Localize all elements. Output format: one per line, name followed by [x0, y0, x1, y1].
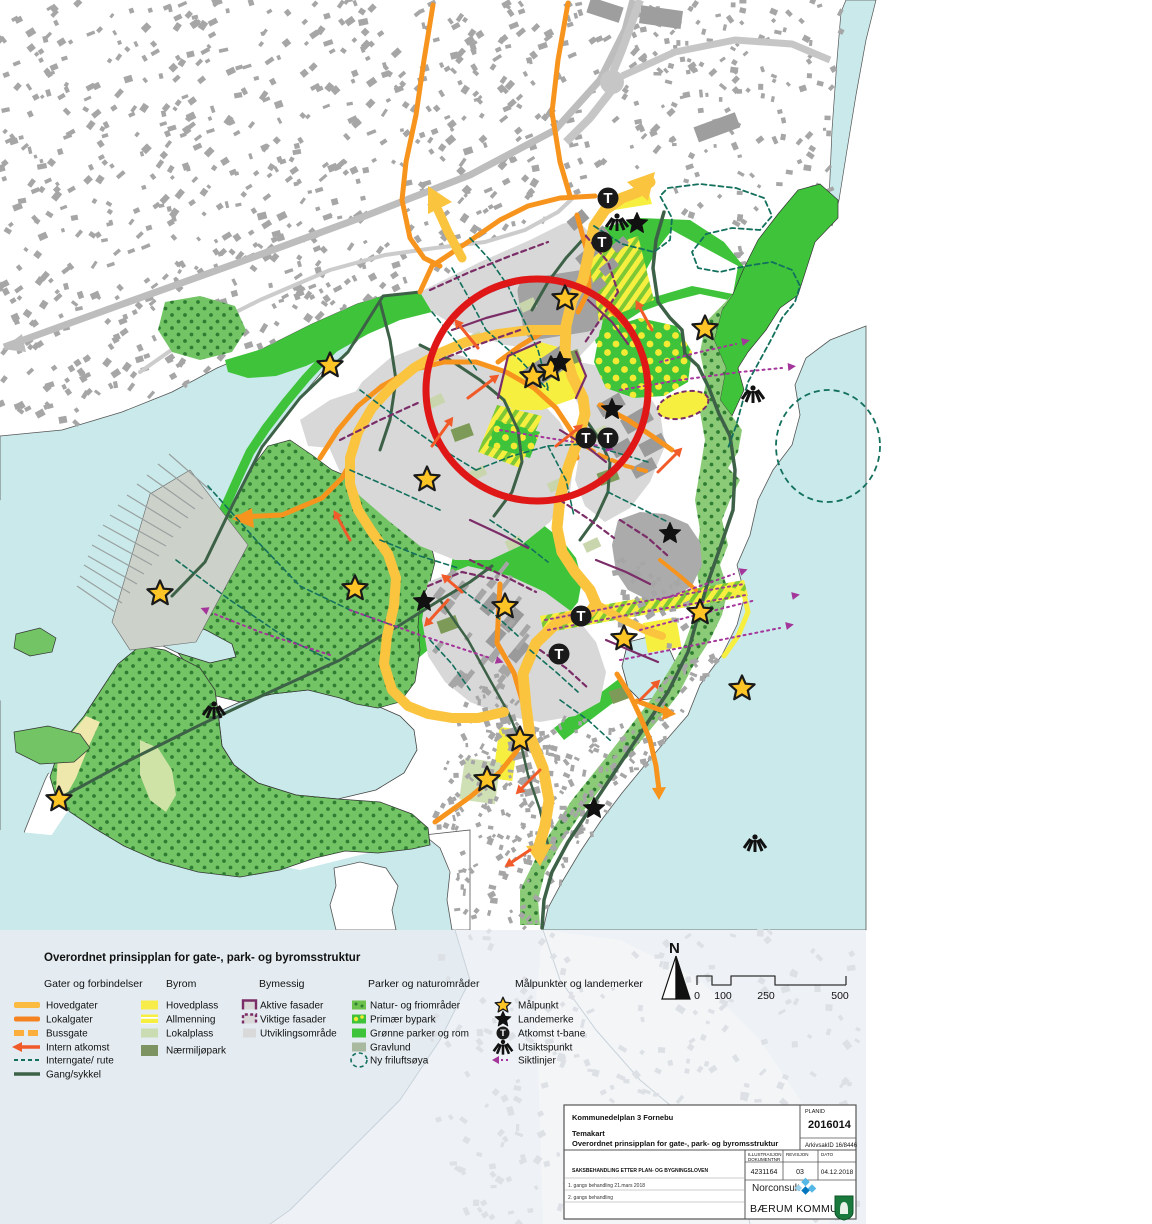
svg-text:Utviklingsområde: Utviklingsområde	[260, 1028, 337, 1040]
svg-text:Bymessig: Bymessig	[259, 978, 305, 990]
svg-text:03: 03	[796, 1169, 804, 1176]
svg-text:Hovedplass: Hovedplass	[166, 1001, 218, 1012]
svg-text:Parker og naturområder: Parker og naturområder	[368, 978, 480, 990]
svg-text:4231164: 4231164	[751, 1169, 778, 1176]
svg-text:Hovedgater: Hovedgater	[46, 1001, 98, 1012]
svg-text:Atkomst t-bane: Atkomst t-bane	[518, 1029, 586, 1040]
svg-text:PLANID: PLANID	[805, 1109, 825, 1115]
svg-text:Gater og forbindelser: Gater og forbindelser	[44, 978, 143, 990]
svg-text:Målpunkter og landemerker: Målpunkter og landemerker	[515, 978, 643, 990]
svg-text:Bussgate: Bussgate	[46, 1029, 88, 1040]
svg-text:Allmenning: Allmenning	[166, 1015, 215, 1026]
svg-text:100: 100	[714, 990, 732, 1002]
svg-text:Lokalgater: Lokalgater	[46, 1015, 93, 1026]
svg-text:Landemerke: Landemerke	[518, 1015, 574, 1026]
svg-text:Utsiktspunkt: Utsiktspunkt	[518, 1043, 573, 1054]
svg-text:250: 250	[757, 990, 775, 1002]
svg-text:Temakart: Temakart	[572, 1129, 605, 1138]
svg-text:Målpunkt: Målpunkt	[518, 1000, 559, 1012]
svg-text:Siktlinjer: Siktlinjer	[518, 1056, 556, 1067]
svg-text:04.12.2018: 04.12.2018	[821, 1169, 854, 1176]
svg-text:Kommunedelplan 3 Fornebu: Kommunedelplan 3 Fornebu	[572, 1113, 674, 1122]
svg-text:Byrom: Byrom	[166, 978, 197, 990]
svg-text:2016014: 2016014	[808, 1119, 852, 1131]
svg-text:Primær bypark: Primær bypark	[370, 1015, 437, 1026]
svg-text:Nærmiljøpark: Nærmiljøpark	[166, 1046, 227, 1057]
svg-text:Overordnet prinsipplan for gat: Overordnet prinsipplan for gate-, park- …	[44, 952, 361, 964]
svg-text:Interngate/ rute: Interngate/ rute	[46, 1056, 114, 1067]
svg-text:1. gangs behandling 21.mars 20: 1. gangs behandling 21.mars 2018	[568, 1183, 645, 1189]
svg-text:DATO: DATO	[821, 1152, 834, 1157]
svg-text:2. gangs behandling: 2. gangs behandling	[568, 1195, 613, 1201]
svg-text:DOKUMENTNR: DOKUMENTNR	[748, 1157, 781, 1162]
svg-text:Overordnet prinsipplan for gat: Overordnet prinsipplan for gate-, park- …	[572, 1139, 778, 1148]
svg-text:SAKSBEHANDLING ETTER PLAN- OG: SAKSBEHANDLING ETTER PLAN- OG BYGNINGSLO…	[572, 1168, 709, 1174]
svg-text:Natur- og friområder: Natur- og friområder	[370, 1000, 461, 1012]
svg-text:Lokalplass: Lokalplass	[166, 1029, 213, 1040]
svg-text:0: 0	[694, 990, 700, 1002]
svg-text:Aktive fasader: Aktive fasader	[260, 1001, 324, 1012]
svg-text:500: 500	[831, 990, 849, 1002]
svg-text:Intern atkomst: Intern atkomst	[46, 1043, 110, 1054]
svg-text:Norconsult: Norconsult	[752, 1183, 800, 1194]
svg-text:REVISJON: REVISJON	[786, 1152, 809, 1157]
svg-text:Gang/sykkel: Gang/sykkel	[46, 1070, 101, 1081]
svg-text:N: N	[669, 940, 680, 957]
svg-text:Viktige fasader: Viktige fasader	[260, 1015, 327, 1026]
svg-text:Grønne parker og rom: Grønne parker og rom	[370, 1029, 469, 1040]
svg-text:ArkivsakID 16/8446: ArkivsakID 16/8446	[805, 1143, 858, 1149]
svg-text:Gravlund: Gravlund	[370, 1043, 411, 1054]
svg-text:Ny friluftsøya: Ny friluftsøya	[370, 1056, 429, 1067]
